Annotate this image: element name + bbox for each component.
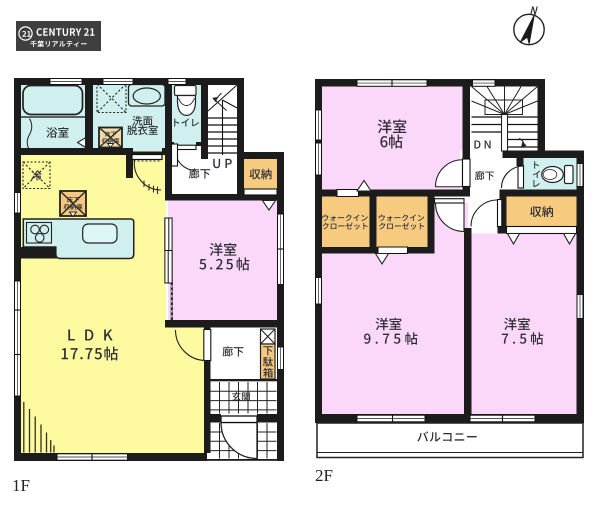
svg-text:2F: 2F — [315, 466, 333, 485]
svg-text:1F: 1F — [12, 476, 30, 495]
